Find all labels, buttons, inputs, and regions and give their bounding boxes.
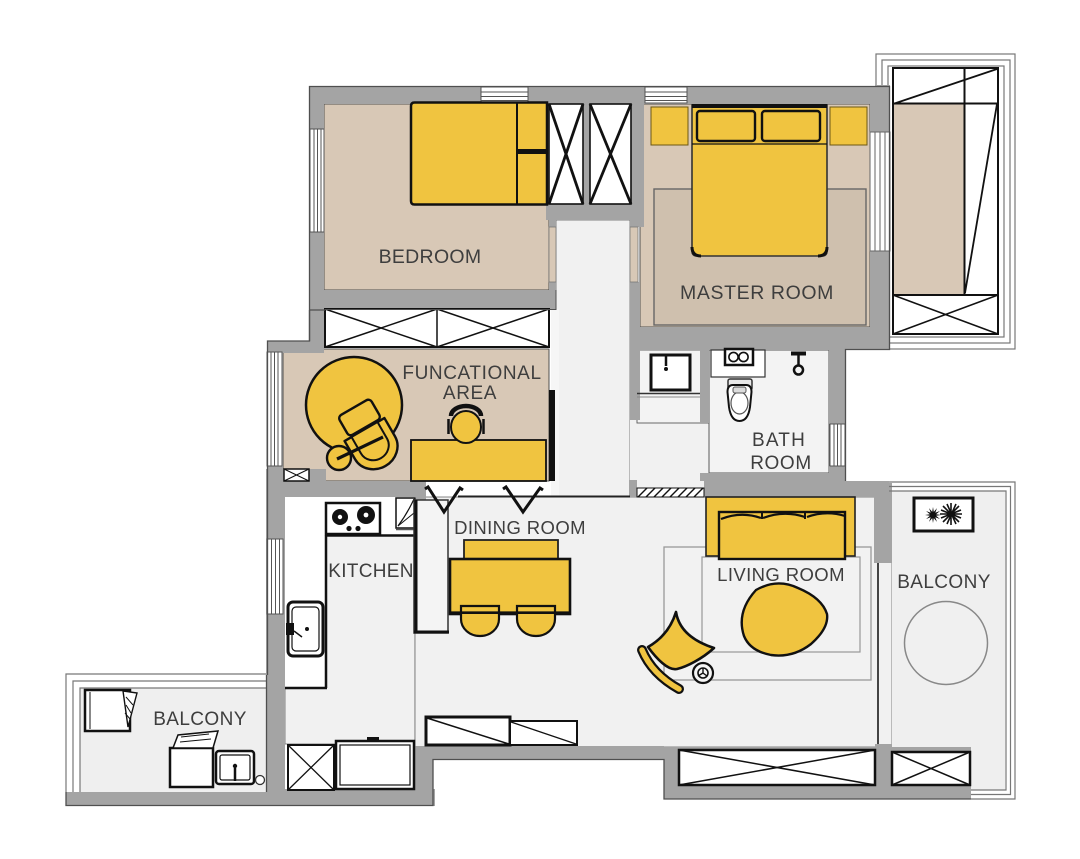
svg-text:LIVING ROOM: LIVING ROOM xyxy=(717,564,845,585)
svg-text:BALCONY: BALCONY xyxy=(897,572,991,593)
svg-text:ROOM: ROOM xyxy=(750,453,812,474)
svg-text:BATH: BATH xyxy=(752,430,806,451)
svg-text:FUNCATIONAL: FUNCATIONAL xyxy=(402,363,541,384)
svg-text:BALCONY: BALCONY xyxy=(153,709,247,730)
svg-text:DINING ROOM: DINING ROOM xyxy=(454,517,586,538)
svg-text:BEDROOM: BEDROOM xyxy=(379,246,482,268)
svg-text:AREA: AREA xyxy=(443,383,497,404)
svg-text:MASTER ROOM: MASTER ROOM xyxy=(680,282,834,304)
svg-text:KITCHEN: KITCHEN xyxy=(328,561,414,582)
